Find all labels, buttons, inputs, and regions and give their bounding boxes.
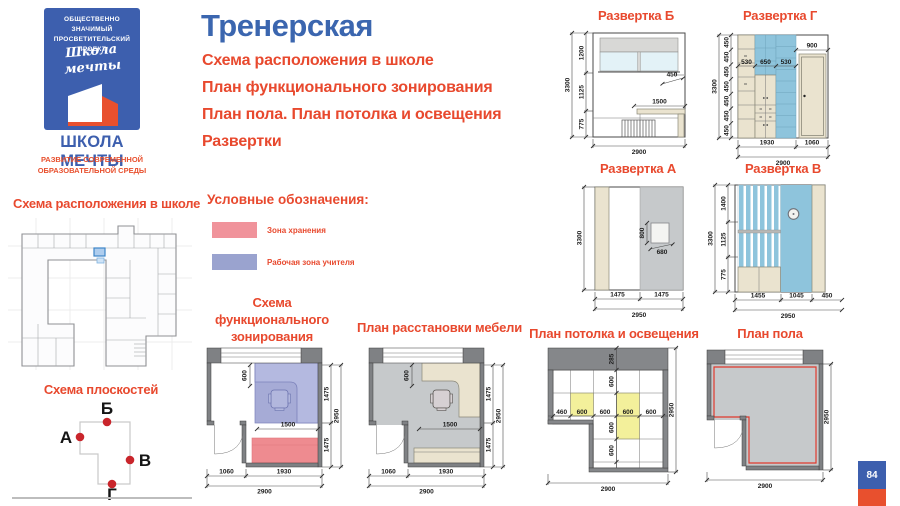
dim-label: 1475 (324, 437, 331, 452)
elevation-g-drawing: 900 530 650 530 450 450 450 450 450 450 … (712, 20, 896, 168)
door-swing (377, 425, 407, 454)
floor-plan-drawing: 2950 2900 (700, 342, 868, 502)
window (221, 348, 301, 363)
dim-label: 600 (242, 370, 249, 381)
dim-label: 900 (807, 43, 818, 50)
cabinet-side-strip (812, 185, 825, 292)
dim-label: 775 (721, 269, 728, 280)
storage-zone (252, 438, 318, 463)
legend-title: Условные обозначения: (207, 192, 369, 207)
page-title: Тренерская (201, 8, 373, 44)
desk-side (637, 109, 685, 114)
dim-label: 2900 (758, 483, 773, 490)
dim-label: 600 (404, 370, 411, 381)
dim-label: 600 (609, 445, 616, 456)
plane-dot-top (103, 418, 112, 427)
zoning-plan-title: Схема функционального зонирования (197, 294, 347, 345)
ceiling-plan-drawing: 460 600 600 600 600 285 600 600 600 2950… (528, 342, 708, 502)
door (799, 54, 826, 138)
dim-label: 450 (724, 51, 731, 62)
dim-label: 1475 (486, 386, 493, 401)
dim-label: 450 (724, 66, 731, 77)
dim-label: 600 (646, 409, 657, 416)
plane-label-top: Б (101, 399, 113, 418)
legend-swatch-storage (212, 222, 257, 238)
dim-label: 1930 (439, 469, 454, 476)
dim-label: 1500 (281, 422, 296, 429)
plane-dot-right (126, 456, 135, 465)
dim-label: 1400 (721, 196, 728, 211)
dim-label: 600 (623, 409, 634, 416)
elevation-b-drawing: 450 1500 1200 1125 775 3300 2900 (556, 24, 714, 162)
dim-label: 2900 (419, 489, 434, 496)
elevation-a-drawing: 800 680 3300 1475 1475 2950 (556, 178, 714, 330)
dim-label: 680 (657, 249, 668, 256)
highlighted-room-marker (94, 248, 105, 256)
footer-divider (12, 497, 192, 499)
chair-symbol (431, 390, 453, 411)
dim-label: 450 (667, 72, 678, 79)
dim-label: 1475 (324, 386, 331, 401)
door-swing (215, 425, 245, 454)
window (383, 348, 463, 363)
dim-label: 775 (579, 118, 586, 129)
zoning-plan-drawing: 600 1500 1475 1475 2950 1060 1930 2900 (200, 345, 350, 497)
dim-label: 600 (609, 422, 616, 433)
subtitle-3: План пола. План потолка и освещения (202, 101, 501, 128)
dim-label: 3300 (565, 77, 572, 92)
elevation-b-title: Развертка Б (576, 8, 696, 23)
plane-dot-left (76, 433, 85, 442)
badge-accent (858, 489, 886, 506)
dim-label: 450 (724, 81, 731, 92)
dim-label: 1125 (579, 85, 586, 99)
window-blind (600, 38, 678, 52)
dim-label: 650 (760, 59, 771, 66)
door-swing (715, 420, 745, 448)
dim-label: 2900 (601, 486, 616, 493)
window (725, 350, 803, 364)
page-number: 84 (858, 461, 886, 489)
logo: ОБЩЕСТВЕННО ЗНАЧИМЫЙ ПРОСВЕТИТЕЛЬСКИЙ ПР… (44, 8, 140, 130)
door-handle (803, 95, 805, 97)
dim-label: 3300 (712, 79, 719, 94)
dim-label: 2900 (257, 489, 272, 496)
dim-label: 600 (577, 409, 588, 416)
dim-label: 1200 (579, 45, 586, 60)
dim-label: 1060 (219, 469, 234, 476)
storage-cabinet (414, 448, 480, 463)
dim-label: 3300 (708, 231, 715, 246)
dim-label: 2950 (781, 313, 796, 320)
dim-label: 530 (781, 59, 792, 66)
dim-label: 1455 (751, 293, 766, 300)
slide-canvas: ОБЩЕСТВЕННО ЗНАЧИМЫЙ ПРОСВЕТИТЕЛЬСКИЙ ПР… (0, 0, 900, 506)
legend-label-storage: Зона хранения (267, 226, 326, 235)
page-number-badge: 84 (858, 461, 886, 506)
subtitle-2: План функционального зонирования (202, 74, 501, 101)
dim-label: 460 (556, 409, 567, 416)
plane-label-left: А (60, 428, 72, 447)
elevation-a-title: Развертка А (578, 161, 698, 176)
dim-label: 1060 (805, 140, 820, 147)
dim-label: 450 (724, 110, 731, 121)
dim-label: 450 (724, 37, 731, 48)
school-building-outline (22, 226, 176, 366)
dim-label: 450 (724, 95, 731, 106)
light-panel (617, 416, 640, 439)
dim-label: 1500 (652, 99, 667, 106)
plane-label-bottom: Г (107, 485, 117, 504)
page-subtitles: Схема расположения в школе План функцион… (202, 47, 501, 155)
cabinet-column (738, 35, 755, 138)
blue-wall-panel (781, 185, 813, 292)
dim-label: 1060 (381, 469, 396, 476)
school-house-icon (62, 80, 122, 126)
dim-label: 450 (724, 125, 731, 136)
dim-label: 2950 (669, 402, 676, 417)
logo-script: Школа мечты (43, 40, 141, 81)
highlighted-room-marker-2 (97, 258, 104, 263)
planes-scheme-title: Схема плоскостей (21, 382, 181, 397)
cabinet-side (595, 187, 609, 290)
dim-label: 600 (609, 376, 616, 387)
legend-swatch-teacher (212, 254, 257, 270)
logo-tagline: РАЗВИТИЕ СОВРЕМЕННОЙ ОБРАЗОВАТЕЛЬНОЙ СРЕ… (34, 155, 150, 176)
location-scheme-title: Схема расположения в школе (13, 196, 193, 211)
chair-symbol (269, 390, 291, 411)
glass-shelving (776, 35, 796, 138)
plane-label-right: В (139, 451, 151, 470)
floor (711, 364, 819, 466)
dim-label: 1475 (486, 437, 493, 452)
dim-label: 1500 (443, 422, 458, 429)
dim-label: 1045 (789, 293, 804, 300)
dim-label: 1930 (277, 469, 292, 476)
dim-label: 600 (600, 409, 611, 416)
dim-label: 2950 (334, 408, 341, 423)
dim-label: 800 (639, 227, 646, 238)
dim-label: 285 (609, 353, 616, 364)
dim-label: 2950 (632, 312, 647, 319)
school-location-plan (8, 218, 192, 370)
wall-board (651, 223, 669, 243)
subtitle-1: Схема расположения в школе (202, 47, 501, 74)
dim-label: 1475 (654, 292, 669, 299)
dim-label: 530 (741, 59, 752, 66)
legend-label-teacher: Рабочая зона учителя (267, 258, 355, 267)
dim-label: 450 (822, 293, 833, 300)
furniture-plan-title: План расстановки мебели (357, 320, 517, 335)
elevation-v-drawing: 1400 1125 775 3300 1455 1045 450 2950 (702, 176, 898, 332)
furniture-plan-drawing: 600 1500 1475 1475 2950 1060 1930 2900 (362, 345, 512, 497)
dim-label: 2950 (824, 409, 831, 424)
planes-scheme-diagram: Б А В Г (28, 398, 172, 502)
elevation-v-title: Развертка В (723, 161, 843, 176)
subtitle-4: Развертки (202, 128, 501, 155)
logo-badge-line1: ОБЩЕСТВЕННО ЗНАЧИМЫЙ (44, 15, 140, 35)
dim-label: 1930 (760, 140, 775, 147)
dim-label: 2900 (632, 149, 647, 156)
dim-label: 1125 (721, 232, 728, 246)
dim-label: 1475 (610, 292, 625, 299)
dim-label: 3300 (577, 230, 584, 245)
dim-label: 2950 (496, 408, 503, 423)
